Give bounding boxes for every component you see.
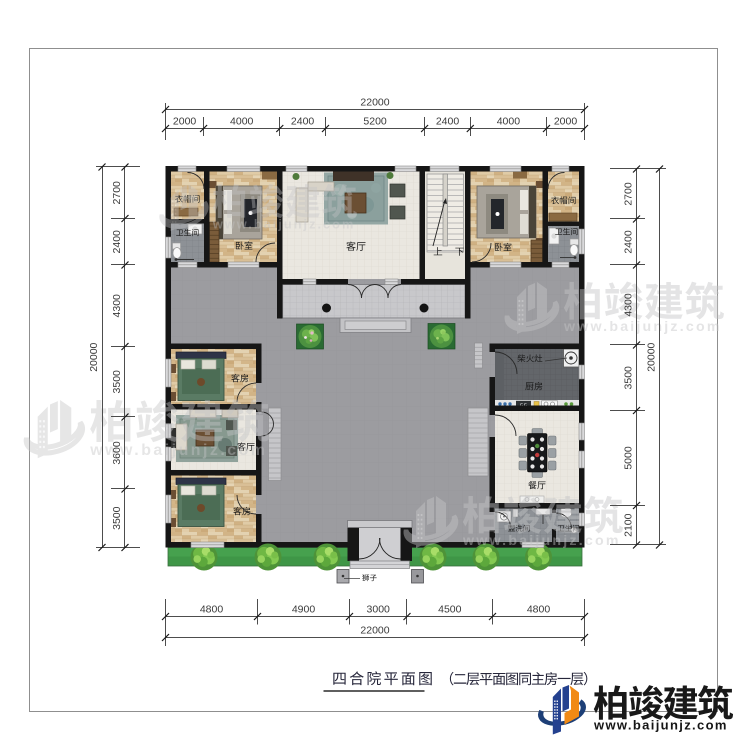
svg-text:3500: 3500 [111,506,123,530]
svg-text:5200: 5200 [363,116,387,128]
svg-text:5000: 5000 [623,446,635,470]
svg-text:2700: 2700 [623,182,635,206]
svg-text:4300: 4300 [623,293,635,317]
svg-text:2000: 2000 [554,116,578,128]
svg-text:2100: 2100 [623,513,635,537]
svg-text:2400: 2400 [623,230,635,254]
svg-text:3500: 3500 [111,370,123,394]
svg-text:2400: 2400 [111,230,123,254]
svg-text:4000: 4000 [497,116,521,128]
svg-text:4000: 4000 [230,116,254,128]
svg-text:4900: 4900 [292,604,316,616]
svg-text:2400: 2400 [436,116,460,128]
svg-text:www.baijunjz.com: www.baijunjz.com [462,533,621,549]
svg-text:22000: 22000 [360,97,389,109]
svg-text:20000: 20000 [88,342,100,371]
svg-text:3600: 3600 [111,441,123,465]
svg-text:4300: 4300 [111,294,123,318]
svg-text:20000: 20000 [646,342,658,371]
svg-text:22000: 22000 [360,625,389,637]
svg-text:www.baijunjz.com: www.baijunjz.com [593,718,728,733]
svg-text:2000: 2000 [173,116,197,128]
svg-text:3500: 3500 [623,366,635,390]
svg-text:4800: 4800 [527,604,551,616]
svg-text:2400: 2400 [291,116,315,128]
svg-text:3000: 3000 [367,604,391,616]
svg-text:4500: 4500 [438,604,462,616]
svg-text:www.baijunjz.com: www.baijunjz.com [563,319,722,335]
svg-text:www.baijunjz.com: www.baijunjz.com [212,216,355,231]
svg-text:4800: 4800 [200,604,224,616]
svg-text:2700: 2700 [111,181,123,205]
